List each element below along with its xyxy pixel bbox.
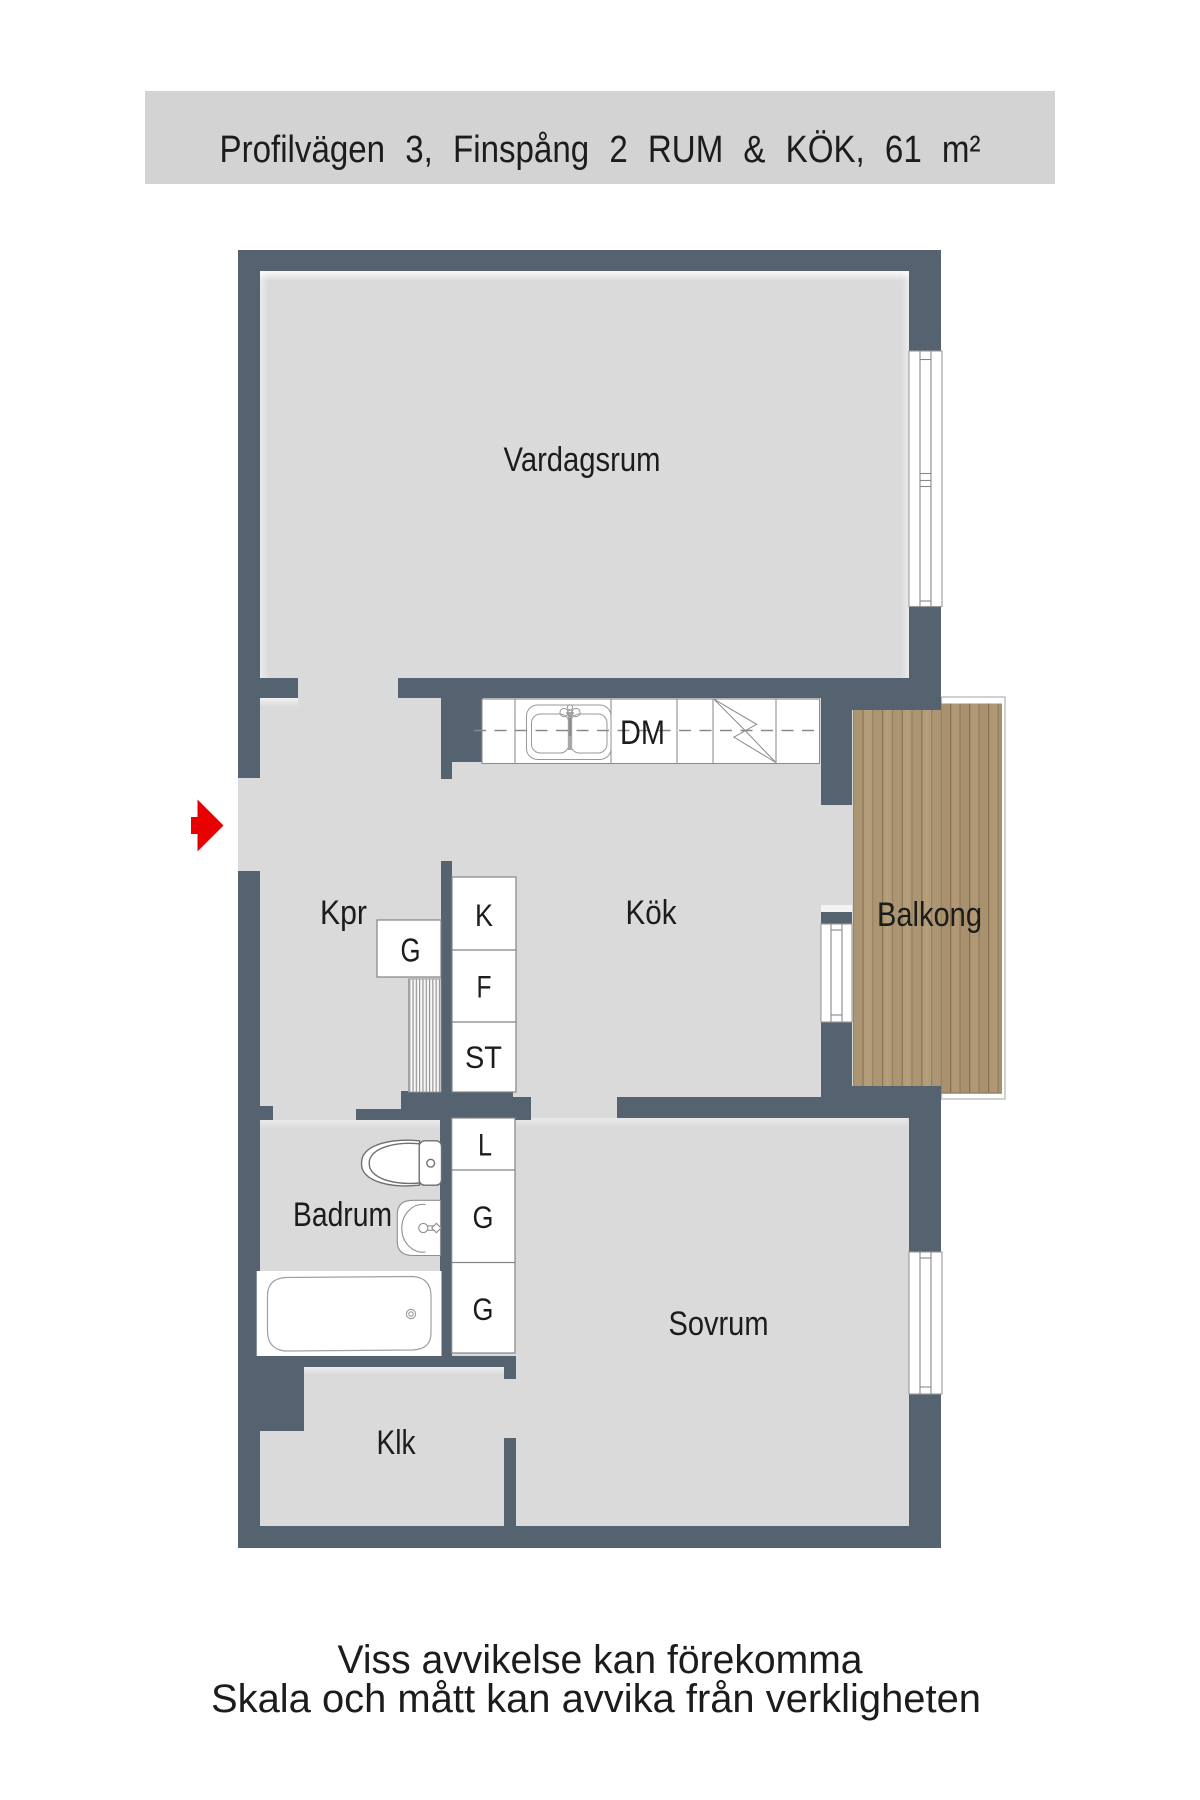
svg-text:Viss avvikelse kan förekomma: Viss avvikelse kan förekomma: [338, 1638, 864, 1682]
svg-text:F: F: [477, 969, 492, 1005]
svg-text:K: K: [475, 897, 493, 933]
svg-text:Vardagsrum: Vardagsrum: [504, 441, 661, 479]
svg-text:Badrum: Badrum: [293, 1196, 392, 1234]
svg-text:G: G: [473, 1291, 494, 1327]
svg-text:G: G: [401, 932, 421, 969]
svg-text:Kpr: Kpr: [320, 894, 367, 932]
svg-text:Kök: Kök: [626, 894, 678, 932]
svg-text:Profilvägen 3, Finspång 2 RUM: Profilvägen 3, Finspång 2 RUM & KÖK, 61 …: [220, 129, 981, 171]
svg-text:Skala och mått kan avvika från: Skala och mått kan avvika från verklighe…: [211, 1677, 981, 1721]
svg-text:L: L: [478, 1127, 492, 1163]
svg-text:Klk: Klk: [377, 1424, 417, 1462]
svg-text:DM: DM: [620, 714, 665, 752]
svg-text:Balkong: Balkong: [877, 896, 982, 934]
svg-text:Sovrum: Sovrum: [669, 1305, 769, 1343]
svg-text:G: G: [473, 1199, 494, 1235]
svg-text:ST: ST: [465, 1039, 502, 1075]
